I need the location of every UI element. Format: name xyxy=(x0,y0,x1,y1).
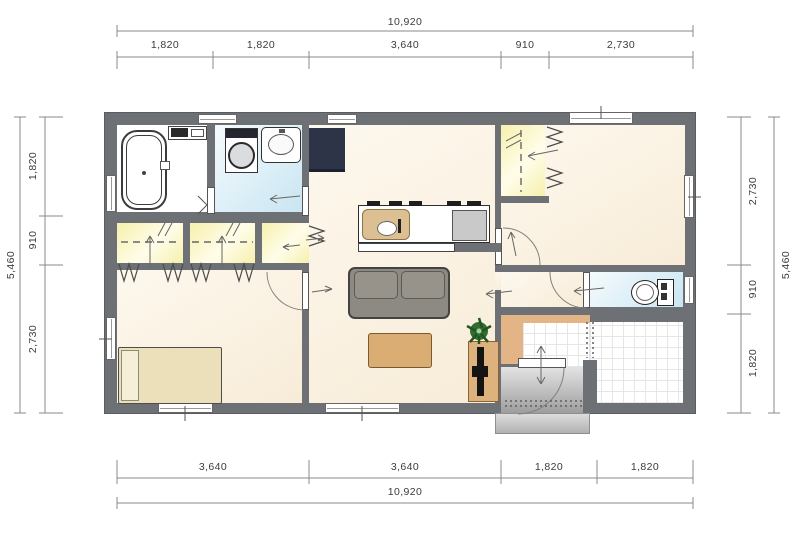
dim-bottom-seg: 3,640 xyxy=(199,461,227,473)
sofa-cushion xyxy=(354,271,398,299)
window-bedroom2-right xyxy=(684,175,694,218)
dim-bottom-seg: 1,820 xyxy=(631,461,659,473)
entrance-porch-recess xyxy=(501,367,590,413)
window-ldk-bottom xyxy=(325,403,400,413)
window-bedroom2-top xyxy=(569,112,633,124)
dim-top-seg: 3,640 xyxy=(391,39,419,51)
bedroom1-door xyxy=(302,272,309,310)
window-bedroom1-bottom xyxy=(158,403,213,413)
hallway xyxy=(501,272,583,307)
floor-plan-page: 10,920 1,820 1,820 3,640 910 2,730 3,640… xyxy=(0,0,800,536)
toilet-door xyxy=(583,272,590,308)
bath-shelf xyxy=(191,129,204,137)
washing-machine-drum xyxy=(228,142,255,169)
closet-3 xyxy=(262,223,309,263)
dim-left-seg: 2,730 xyxy=(27,325,39,353)
window-washroom xyxy=(198,114,237,124)
closet-2 xyxy=(190,223,255,263)
storage-wall xyxy=(583,360,597,413)
dim-bottom-seg: 1,820 xyxy=(535,461,563,473)
kitchen-sink-bowl xyxy=(377,221,397,236)
bath-faucet xyxy=(171,128,188,137)
coffee-table xyxy=(368,333,432,368)
bathroom-door xyxy=(207,187,215,214)
bathtub-drain xyxy=(142,171,146,175)
dim-bottom-total: 10,920 xyxy=(388,486,423,498)
dim-top-seg: 1,820 xyxy=(247,39,275,51)
window-toilet xyxy=(684,276,694,304)
dim-right-seg: 2,730 xyxy=(747,177,759,205)
washroom-door xyxy=(302,186,309,216)
counter-front xyxy=(358,243,455,252)
dim-left-seg: 910 xyxy=(27,231,39,250)
toilet-button xyxy=(661,293,667,300)
front-door xyxy=(518,358,566,368)
toilet-button xyxy=(661,283,667,290)
kitchen-faucet xyxy=(398,219,401,233)
dim-bottom-seg: 3,640 xyxy=(391,461,419,473)
counter-half-wall xyxy=(455,243,501,252)
dim-right-total: 5,460 xyxy=(780,251,792,279)
vanity-basin xyxy=(268,134,294,155)
window-kitchen xyxy=(327,114,357,124)
bed-pillow xyxy=(121,350,139,401)
dim-top-seg: 1,820 xyxy=(151,39,179,51)
dim-right-seg: 1,820 xyxy=(747,349,759,377)
tv-base xyxy=(472,366,488,377)
window-bathroom xyxy=(106,175,116,212)
window-bedroom1-left xyxy=(106,317,116,360)
porch-step xyxy=(495,413,590,434)
hallway-opening xyxy=(495,272,501,290)
dim-right-seg: 910 xyxy=(747,280,759,299)
dim-top-seg: 910 xyxy=(516,39,535,51)
closet-1 xyxy=(117,223,183,263)
vanity-faucet xyxy=(279,129,285,133)
sofa-cushion xyxy=(401,271,445,299)
dim-left-seg: 1,820 xyxy=(27,152,39,180)
washing-machine-panel xyxy=(226,129,257,138)
shower-control xyxy=(160,161,170,170)
stove xyxy=(452,210,487,241)
toilet-seat xyxy=(636,284,654,301)
dim-top-total: 10,920 xyxy=(388,16,423,28)
dim-left-total: 5,460 xyxy=(5,251,17,279)
bathtub-inner xyxy=(126,135,162,205)
closet-bedroom-2 xyxy=(501,125,545,196)
room-tiled-storage xyxy=(590,322,683,403)
refrigerator xyxy=(309,128,345,172)
closet-wall xyxy=(501,196,549,203)
dim-top-seg: 2,730 xyxy=(607,39,635,51)
